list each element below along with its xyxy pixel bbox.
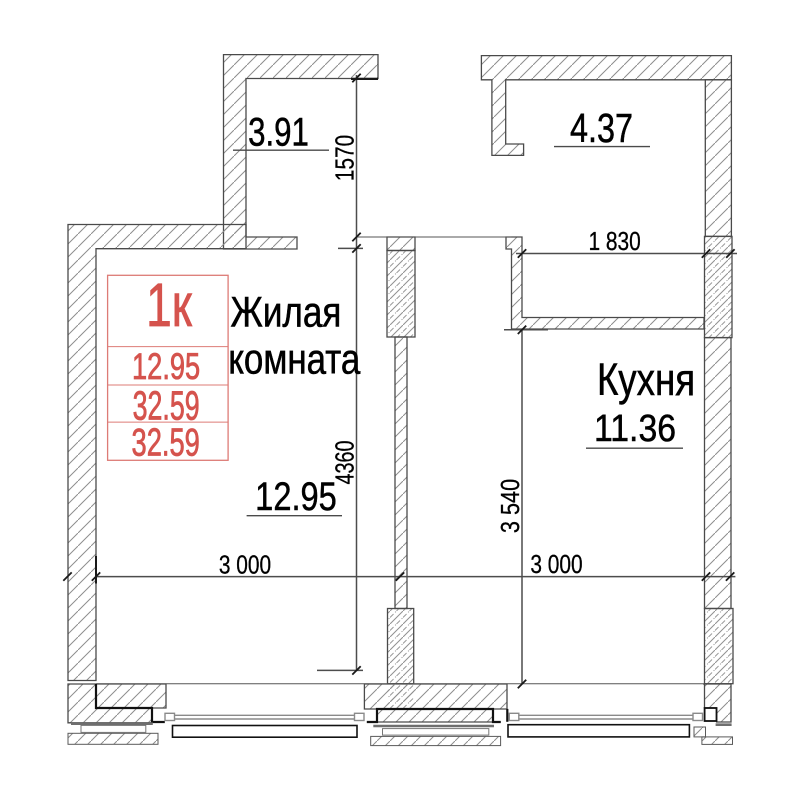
svg-text:12.95: 12.95 [255, 474, 337, 519]
svg-text:Кухня: Кухня [597, 354, 695, 404]
svg-text:11.36: 11.36 [594, 406, 676, 449]
svg-text:3.91: 3.91 [248, 110, 309, 154]
svg-text:4.37: 4.37 [570, 105, 633, 150]
svg-text:32.59: 32.59 [132, 422, 200, 465]
svg-text:12.95: 12.95 [132, 346, 200, 387]
svg-text:1570: 1570 [330, 135, 359, 181]
svg-text:1к: 1к [146, 272, 192, 340]
svg-text:1 830: 1 830 [588, 227, 640, 255]
svg-text:3 000: 3 000 [530, 550, 582, 578]
svg-text:3 540: 3 540 [497, 479, 525, 533]
svg-text:4360: 4360 [330, 441, 359, 485]
svg-text:3 000: 3 000 [219, 550, 271, 578]
svg-text:Жилая: Жилая [231, 288, 342, 336]
svg-text:комната: комната [228, 336, 360, 383]
